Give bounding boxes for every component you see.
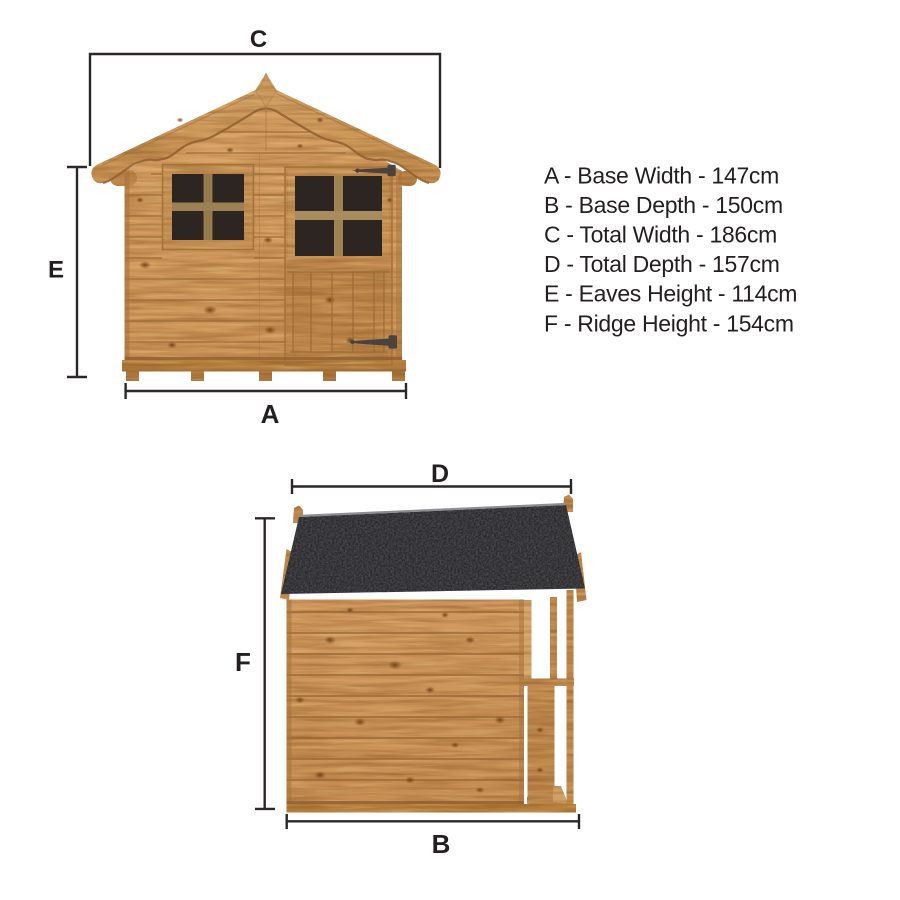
svg-text:D - Total Depth - 157cm: D - Total Depth - 157cm	[544, 251, 780, 277]
svg-text:A: A	[261, 399, 280, 429]
svg-text:F: F	[235, 647, 251, 677]
svg-text:C - Total Width - 186cm: C - Total Width - 186cm	[544, 222, 777, 248]
svg-text:B - Base Depth - 150cm: B - Base Depth - 150cm	[544, 192, 783, 218]
svg-text:D: D	[431, 460, 449, 488]
svg-text:B: B	[432, 829, 451, 859]
svg-text:E: E	[48, 257, 64, 284]
svg-text:E - Eaves Height - 114cm: E - Eaves Height - 114cm	[544, 281, 797, 307]
svg-text:F - Ridge Height - 154cm: F - Ridge Height - 154cm	[544, 310, 794, 336]
svg-text:C: C	[250, 26, 267, 53]
svg-text:A - Base Width - 147cm: A - Base Width - 147cm	[544, 162, 779, 188]
